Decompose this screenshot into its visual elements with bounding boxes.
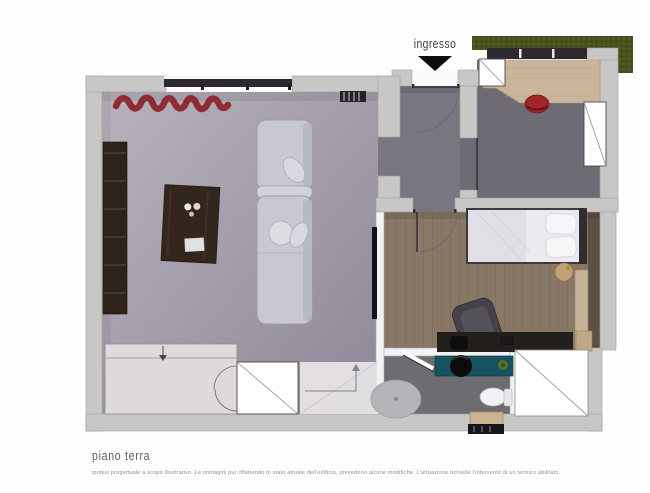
floorplan-page: ingresso piano terra ipotesi progettuale… [0,0,650,493]
plan-title: piano terra [92,449,150,463]
entrance-label: ingresso [400,36,470,51]
living-hall-opening [378,137,400,176]
tv-cabinet [103,142,127,314]
window-mullion [288,84,291,90]
bedroom-cabinet [576,331,592,351]
plan-disclaimer: ipotesi progettuale a scopo illustrativo… [92,470,641,476]
entrance-arrow [418,56,452,71]
window-mullion [552,49,555,58]
table-lamp [566,266,570,270]
vessel-sink [450,355,472,377]
pouf [269,221,293,245]
study-window [487,48,587,59]
study-door-opening [460,138,477,190]
front-door-threshold [412,70,458,86]
magazine [185,238,205,252]
coffee-table [161,185,220,264]
wall-stub-a [378,76,400,137]
stair-landing [300,362,377,414]
window-sill [164,76,292,79]
pillow [545,236,576,258]
wall-right-bedroom [600,212,616,350]
sideboard [105,344,237,414]
wardrobe-study-left [479,59,505,86]
bedroom-desk [437,332,573,352]
laptop [500,336,514,345]
wall-study-left [460,86,477,138]
bedside-table [555,263,573,281]
living-window [164,76,292,90]
sofa [257,120,312,324]
wall-stub-b [378,176,400,198]
window-mullion [246,84,249,90]
bathroom-vanity [435,355,513,377]
closet-square-right [515,350,588,416]
window-frame [164,79,292,87]
shower-tub [371,380,421,418]
wall-top-b [292,76,392,92]
toilet [480,388,512,406]
wall-bottom [86,414,602,431]
desk-chair [525,95,549,113]
wall-band-left [376,198,413,212]
wall-left [86,76,102,431]
window-mullion [519,49,522,58]
bed [466,208,587,264]
window-frame [487,48,587,59]
desk-chair-black [450,336,468,350]
drain [394,397,398,401]
bedroom-door-opening [413,198,455,212]
headboard [579,208,587,264]
wall-top-a [86,76,166,92]
wardrobe-study-right [584,102,606,166]
window-mullion [201,84,204,90]
outdoor-unit [468,412,504,434]
floor-plan [0,0,650,493]
pillow [545,213,576,235]
wall-study-left-stub [460,190,477,198]
radiator-wall-strip [372,227,377,319]
